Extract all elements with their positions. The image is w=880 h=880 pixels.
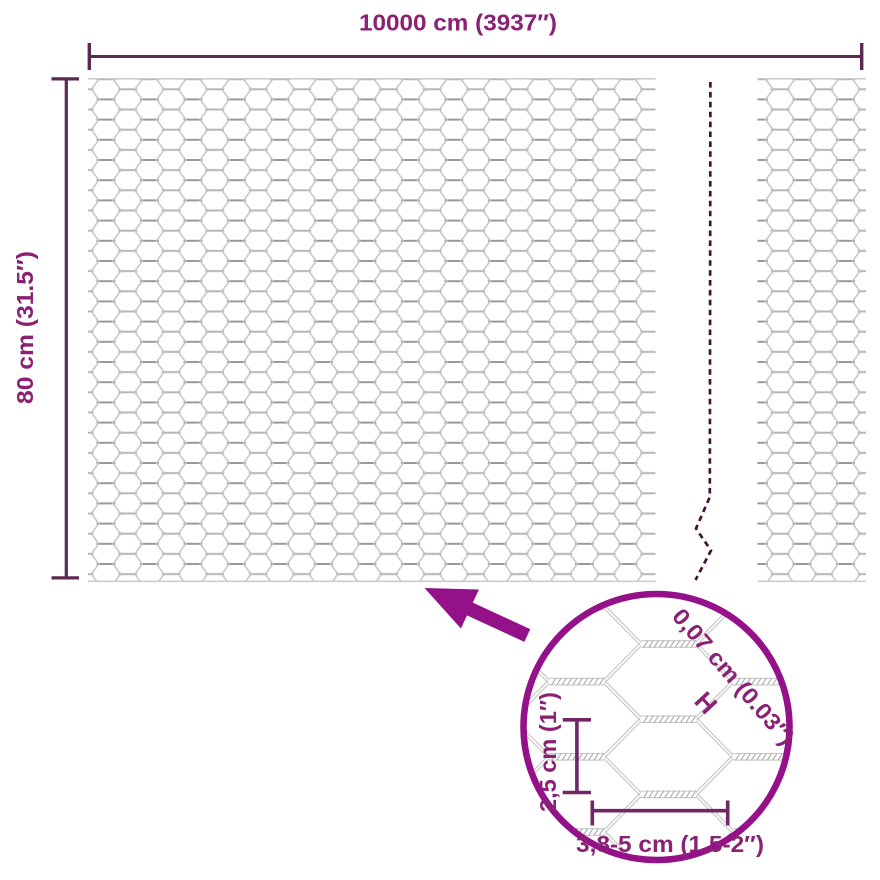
- svg-text:3,8-5 cm (1.5-2″): 3,8-5 cm (1.5-2″): [576, 831, 764, 857]
- svg-text:80 cm (31.5″): 80 cm (31.5″): [12, 251, 38, 404]
- svg-text:2,5 cm (1″): 2,5 cm (1″): [535, 692, 561, 812]
- svg-text:10000 cm (3937″): 10000 cm (3937″): [359, 10, 557, 36]
